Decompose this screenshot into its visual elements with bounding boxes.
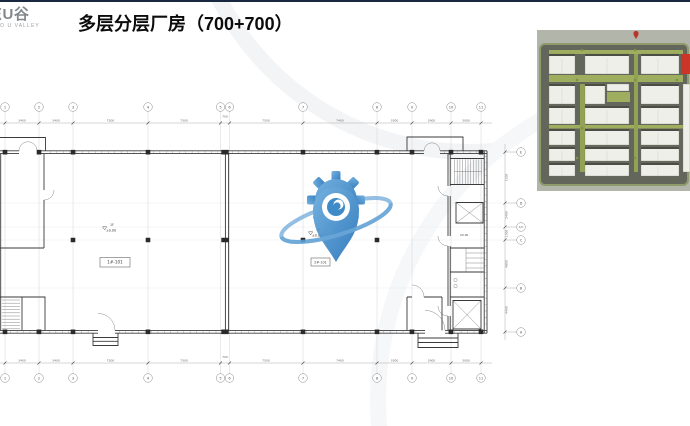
level-label: ±0.00 — [106, 228, 116, 232]
dim-label: 7400 — [336, 119, 344, 123]
dim-label: 5100 — [505, 174, 509, 182]
logo-text: 东U谷 — [0, 7, 40, 22]
dim-label: 7500 — [107, 119, 115, 123]
dim-label: 3900 — [428, 119, 436, 123]
watermark-logo — [276, 166, 398, 270]
grid-label: 1 — [4, 376, 6, 380]
elevator-shaft — [453, 203, 483, 330]
grid-label: 10 — [449, 105, 454, 109]
presentation-slide: 东U谷 O U VALLEY 多层分层厂房（700+700） 3400 3400… — [0, 0, 690, 426]
interior-details — [2, 142, 484, 331]
site-plan-thumbnail — [537, 30, 690, 191]
dim-label: 7400 — [336, 359, 344, 363]
grid-label: 1 — [4, 105, 6, 109]
dim-label: 7500 — [262, 359, 270, 363]
grid-label: 5 — [219, 376, 221, 380]
dim-label: 7500 — [262, 119, 270, 123]
window-ticks — [4, 152, 486, 332]
dim-label: 3900 — [428, 359, 436, 363]
dim-label: 3500 — [391, 359, 399, 363]
dim-label: 3400 — [52, 119, 60, 123]
red-highlight-building — [681, 54, 690, 74]
dim-label: 3400 — [18, 119, 26, 123]
site-buildings — [549, 54, 690, 176]
sink — [454, 278, 457, 281]
dimension-labels-bottom: 3400 3400 7500 7300 700 7500 7400 3500 3… — [18, 355, 470, 363]
dim-label: 3000 — [462, 359, 470, 363]
grid-label: 3 — [72, 105, 74, 109]
grid-label: 2 — [38, 105, 40, 109]
dim-label: 4400 — [505, 306, 509, 314]
dim-label: 700 — [222, 355, 228, 359]
dim-label: 1300 — [505, 230, 509, 238]
dimension-lines — [0, 122, 517, 365]
logo-subtext: O U VALLEY — [0, 24, 40, 29]
grid-label: 10 — [449, 376, 454, 380]
sink — [454, 284, 457, 287]
dim-label: 2400 — [505, 211, 509, 219]
watermark-pin-pupil-inner — [333, 202, 340, 209]
floor-label: 1F — [110, 223, 114, 227]
floor-plan-drawing: 3400 3400 7500 7300 700 7500 7400 3500 3… — [0, 90, 530, 402]
slide-top-border — [0, 0, 690, 2]
grid-label: 5 — [219, 105, 221, 109]
dim-label: 3400 — [18, 359, 26, 363]
grid-bubbles-top: 1 2 3 4 5 6 7 8 9 10 11 — [1, 103, 486, 112]
dim-label: 4800 — [505, 260, 509, 268]
grid-bubbles-bottom: 1 2 3 4 5 6 7 8 9 10 11 — [1, 374, 486, 383]
grid-label: 7 — [302, 376, 304, 380]
stair — [455, 160, 482, 185]
dim-label: 3400 — [52, 359, 60, 363]
level-label: ±0.00 — [460, 233, 469, 237]
company-logo: 东U谷 O U VALLEY — [0, 7, 40, 29]
dim-label: 7300 — [180, 119, 188, 123]
dimension-labels-top: 3400 3400 7500 7300 700 7500 7400 3500 3… — [18, 115, 470, 123]
grid-label: D — [520, 201, 523, 205]
grid-bubbles-right: E D 1/C C B A — [517, 148, 526, 337]
grid-label: 11 — [479, 105, 484, 109]
structural-columns — [3, 150, 484, 334]
grid-label: 2 — [38, 376, 40, 380]
grid-label: 11 — [479, 376, 484, 380]
grid-label: E — [520, 150, 522, 154]
dim-label: 3000 — [462, 119, 470, 123]
grid-label: 7 — [302, 105, 304, 109]
page-title: 多层分层厂房（700+700） — [78, 10, 293, 36]
grid-label: 1/C — [519, 225, 524, 229]
room-label: 1#-101 — [107, 260, 123, 265]
stair — [2, 300, 20, 329]
toilet-stalls — [466, 248, 484, 272]
dim-label: 700 — [222, 115, 228, 119]
dim-label: 7500 — [107, 359, 115, 363]
grid-label: 3 — [72, 376, 74, 380]
room-label-left: 1#-101 — [100, 258, 130, 268]
dim-label: 3500 — [391, 119, 399, 123]
dim-label: 7300 — [180, 359, 188, 363]
